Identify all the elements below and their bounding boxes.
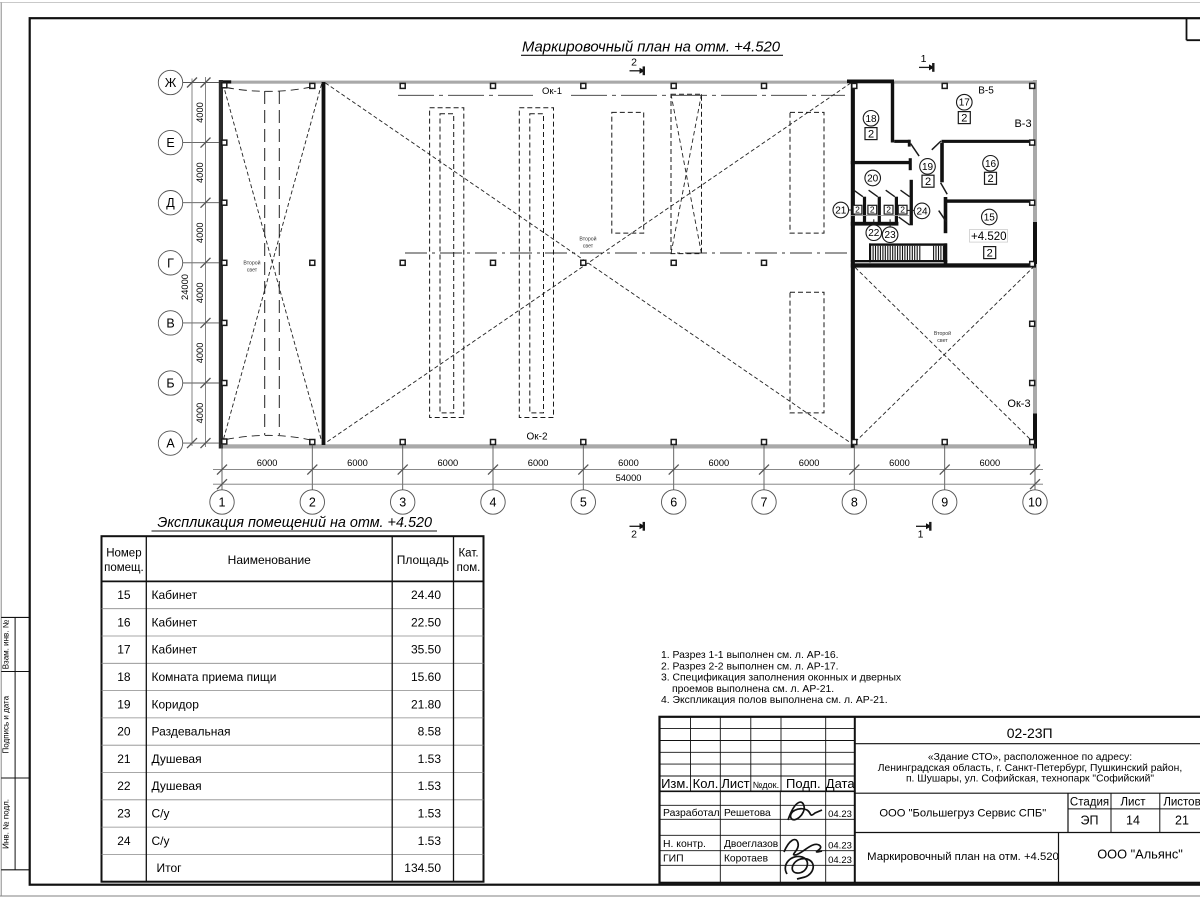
svg-text:2: 2 [309,495,316,509]
svg-text:6000: 6000 [528,458,549,468]
svg-text:17: 17 [959,98,971,109]
svg-text:4: 4 [490,495,497,509]
svg-text:Ж: Ж [165,76,177,90]
svg-text:21: 21 [1175,814,1189,828]
svg-text:24: 24 [916,206,928,217]
svg-text:35.50: 35.50 [411,643,441,657]
svg-text:Двоеглазов: Двоеглазов [724,839,778,850]
svg-text:14: 14 [1126,814,1140,828]
svg-text:Подпись и дата: Подпись и дата [2,695,11,753]
svg-text:6000: 6000 [347,458,368,468]
svg-text:Дата: Дата [826,776,856,791]
svg-text:6000: 6000 [438,458,459,468]
svg-text:22: 22 [117,779,131,793]
svg-text:21: 21 [835,206,847,217]
svg-text:Номер: Номер [106,548,141,560]
svg-text:В-3: В-3 [1014,118,1031,130]
svg-text:2: 2 [987,173,993,185]
svg-text:2: 2 [870,205,875,215]
svg-text:04.23: 04.23 [828,841,852,852]
svg-text:ЭП: ЭП [1081,814,1099,828]
svg-text:4. Экспликация полов выполнена: 4. Экспликация полов выполнена см. л. АР… [661,695,888,706]
svg-text:Подп.: Подп. [786,776,821,791]
svg-text:20: 20 [117,725,131,739]
svg-text:Ок-2: Ок-2 [526,432,547,443]
svg-text:7: 7 [761,495,768,509]
svg-text:15: 15 [117,588,131,602]
svg-text:1.53: 1.53 [418,752,442,766]
svg-text:Второй: Второй [579,236,596,243]
svg-text:В: В [166,316,174,330]
svg-text:04.23: 04.23 [828,855,852,866]
svg-text:Итог: Итог [157,861,183,875]
svg-text:17: 17 [117,643,131,657]
svg-text:Г: Г [167,256,174,270]
svg-text:1: 1 [921,53,927,65]
svg-text:Маркировочный план на отм. +4.: Маркировочный план на отм. +4.520 [522,40,781,56]
svg-text:Инв. № подл.: Инв. № подл. [2,799,11,849]
svg-text:21.80: 21.80 [411,697,441,711]
svg-text:4000: 4000 [195,222,205,243]
svg-text:24000: 24000 [180,274,190,300]
svg-text:Маркировочный план на отм. +4.: Маркировочный план на отм. +4.520 [867,851,1059,863]
svg-text:22: 22 [868,228,880,239]
svg-text:ГИП: ГИП [663,854,684,865]
svg-text:6000: 6000 [799,458,820,468]
svg-text:18: 18 [865,114,877,125]
svg-text:6000: 6000 [980,458,1001,468]
svg-text:Д: Д [166,196,175,210]
svg-text:Лист: Лист [721,776,749,791]
svg-text:15: 15 [984,213,996,224]
svg-text:Листов: Листов [1163,796,1200,808]
svg-text:23: 23 [117,806,131,820]
svg-text:18: 18 [117,670,131,684]
svg-text:Решетова: Решетова [724,808,771,819]
svg-text:1. Разрез 1-1 выполнен см. л.: 1. Разрез 1-1 выполнен см. л. АР-16. [661,650,839,661]
svg-text:№док.: №док. [753,780,779,790]
svg-text:23: 23 [885,230,897,241]
svg-text:Ленинградская область, г. Санк: Ленинградская область, г. Санкт-Петербур… [878,762,1182,774]
svg-text:Второй: Второй [934,330,951,337]
svg-text:свет: свет [583,244,594,250]
svg-text:2: 2 [987,247,993,259]
svg-text:Второй: Второй [243,260,260,267]
svg-text:134.50: 134.50 [404,861,441,875]
svg-text:Кабинет: Кабинет [152,615,198,629]
svg-text:3: 3 [399,495,406,509]
svg-text:1: 1 [219,495,226,509]
svg-text:4000: 4000 [195,283,205,304]
svg-text:1.53: 1.53 [418,834,442,848]
svg-text:8: 8 [851,495,858,509]
svg-text:Ок-1: Ок-1 [542,86,562,97]
svg-text:свет: свет [937,338,948,344]
svg-text:Комната приема пищи: Комната приема пищи [152,670,277,684]
svg-text:«Здание СТО», расположенное по: «Здание СТО», расположенное по адресу: [928,752,1132,763]
svg-text:Е: Е [166,136,174,150]
svg-text:Кат.: Кат. [458,548,478,560]
svg-text:1.53: 1.53 [418,779,442,793]
svg-text:5: 5 [580,495,587,509]
svg-text:Коротаев: Коротаев [724,854,768,865]
svg-text:6000: 6000 [257,458,278,468]
svg-text:Ок-3: Ок-3 [1007,398,1030,410]
svg-text:9: 9 [941,495,948,509]
svg-text:Кабинет: Кабинет [152,643,198,657]
svg-text:1: 1 [918,529,924,541]
svg-text:4000: 4000 [195,403,205,424]
svg-text:Кол.: Кол. [693,776,719,791]
svg-text:проемов выполнена см. л. АР-21: проемов выполнена см. л. АР-21. [672,684,834,695]
svg-text:Душевая: Душевая [152,779,202,793]
svg-text:16: 16 [117,615,131,629]
svg-text:6000: 6000 [618,458,639,468]
svg-text:Коридор: Коридор [152,697,200,711]
svg-text:10: 10 [1028,495,1042,509]
svg-text:8.58: 8.58 [418,725,442,739]
svg-text:Разработал: Разработал [663,807,720,819]
svg-text:2: 2 [886,205,891,215]
svg-text:4000: 4000 [195,162,205,183]
svg-text:Лист: Лист [1121,796,1147,808]
svg-text:Н. контр.: Н. контр. [663,839,706,850]
svg-text:04.23: 04.23 [828,809,852,820]
svg-text:21: 21 [117,752,131,766]
svg-text:2: 2 [631,57,637,69]
svg-text:54000: 54000 [616,473,642,483]
svg-text:2: 2 [925,176,931,188]
svg-text:2: 2 [900,205,905,215]
svg-text:Наименование: Наименование [228,553,312,567]
svg-text:ООО "Альянс": ООО "Альянс" [1097,847,1183,862]
svg-text:Кабинет: Кабинет [152,588,198,602]
svg-text:2: 2 [631,529,637,541]
svg-text:4000: 4000 [195,102,205,123]
svg-text:24: 24 [117,834,131,848]
svg-text:3. Спецификация заполнения око: 3. Спецификация заполнения оконных и две… [661,672,902,684]
svg-text:4000: 4000 [195,343,205,364]
svg-text:1.53: 1.53 [418,806,442,820]
svg-text:Экспликация помещений на отм.: Экспликация помещений на отм. +4.520 [157,515,432,531]
svg-text:24.40: 24.40 [411,588,441,602]
svg-text:19: 19 [117,697,131,711]
svg-text:16: 16 [985,159,997,170]
svg-text:Взам. инв. №: Взам. инв. № [2,619,11,669]
svg-text:С/у: С/у [152,806,170,820]
svg-text:п. Шушары, ул. Софийская, техн: п. Шушары, ул. Софийская, технопарк "Соф… [906,773,1154,785]
svg-text:Душевая: Душевая [152,752,202,766]
svg-text:пом.: пом. [457,562,481,574]
svg-text:15.60: 15.60 [411,670,441,684]
svg-text:2: 2 [868,128,874,140]
svg-text:2: 2 [855,205,860,215]
svg-text:Площадь: Площадь [397,553,449,567]
svg-text:6000: 6000 [889,458,910,468]
svg-text:19: 19 [922,162,934,173]
svg-text:Стадия: Стадия [1070,796,1109,808]
svg-text:Раздевальная: Раздевальная [152,725,231,739]
svg-text:6: 6 [670,495,677,509]
svg-text:02-23П: 02-23П [1007,725,1053,741]
svg-text:А: А [166,437,175,451]
svg-text:2. Разрез 2-2 выполнен см. л.: 2. Разрез 2-2 выполнен см. л. АР-17. [661,661,839,672]
svg-text:+4.520: +4.520 [971,231,1007,243]
svg-text:помещ.: помещ. [104,562,144,574]
svg-text:свет: свет [247,268,258,274]
svg-text:Б: Б [166,377,174,391]
svg-text:2: 2 [961,112,967,124]
svg-text:Изм.: Изм. [661,776,689,791]
svg-text:С/у: С/у [152,834,170,848]
svg-text:В-5: В-5 [978,86,994,97]
svg-text:6000: 6000 [709,458,730,468]
svg-text:ООО "Большегруз Сервис СПБ": ООО "Большегруз Сервис СПБ" [879,808,1046,820]
svg-text:20: 20 [867,174,879,185]
svg-text:22.50: 22.50 [411,615,441,629]
